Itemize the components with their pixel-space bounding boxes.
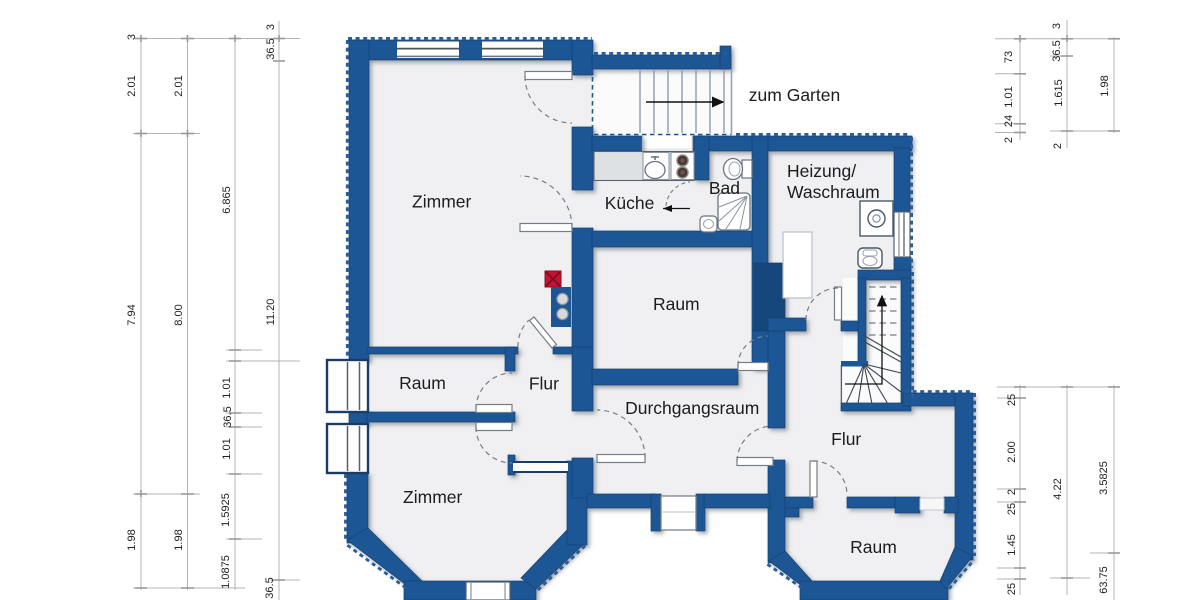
svg-text:36.5: 36.5 bbox=[222, 406, 234, 427]
svg-text:36.5: 36.5 bbox=[264, 577, 276, 598]
svg-text:1.45: 1.45 bbox=[1006, 534, 1018, 555]
svg-text:3.5825: 3.5825 bbox=[1098, 461, 1110, 495]
svg-text:1.98: 1.98 bbox=[126, 529, 138, 550]
svg-text:73: 73 bbox=[1003, 51, 1015, 63]
svg-text:Küche: Küche bbox=[605, 193, 655, 213]
svg-text:63.75: 63.75 bbox=[1098, 566, 1110, 594]
svg-text:1.01: 1.01 bbox=[221, 438, 233, 459]
svg-text:2.00: 2.00 bbox=[1006, 441, 1018, 462]
svg-text:2.01: 2.01 bbox=[173, 75, 185, 96]
svg-text:1.01: 1.01 bbox=[221, 377, 233, 398]
svg-text:Flur: Flur bbox=[529, 374, 559, 394]
svg-text:2: 2 bbox=[1006, 489, 1018, 495]
svg-text:zum Garten: zum Garten bbox=[749, 85, 840, 105]
svg-text:36.5: 36.5 bbox=[265, 38, 277, 59]
svg-text:2: 2 bbox=[1052, 143, 1064, 149]
svg-text:Heizung/: Heizung/ bbox=[787, 161, 856, 181]
svg-text:Raum: Raum bbox=[653, 294, 700, 314]
svg-text:2.01: 2.01 bbox=[126, 75, 138, 96]
svg-text:Waschraum: Waschraum bbox=[787, 182, 880, 202]
svg-text:Raum: Raum bbox=[399, 373, 446, 393]
svg-text:3: 3 bbox=[126, 34, 138, 40]
svg-text:Durchgangsraum: Durchgangsraum bbox=[625, 398, 759, 418]
svg-text:Zimmer: Zimmer bbox=[403, 487, 462, 507]
svg-text:8.00: 8.00 bbox=[173, 304, 185, 325]
svg-text:Bad: Bad bbox=[709, 178, 740, 198]
svg-text:36.5: 36.5 bbox=[1051, 40, 1063, 61]
svg-text:6.865: 6.865 bbox=[221, 186, 233, 214]
svg-text:11.20: 11.20 bbox=[265, 299, 277, 326]
svg-text:Raum: Raum bbox=[850, 537, 897, 557]
svg-text:1.01: 1.01 bbox=[1003, 86, 1015, 107]
svg-text:1.98: 1.98 bbox=[173, 529, 185, 550]
svg-text:1.0875: 1.0875 bbox=[220, 555, 232, 589]
svg-text:Zimmer: Zimmer bbox=[412, 192, 471, 212]
svg-text:3: 3 bbox=[1051, 23, 1063, 29]
svg-text:2: 2 bbox=[1003, 137, 1015, 143]
svg-text:4.22: 4.22 bbox=[1052, 478, 1064, 499]
svg-text:1.615: 1.615 bbox=[1053, 79, 1065, 107]
svg-text:Flur: Flur bbox=[831, 429, 861, 449]
svg-text:3: 3 bbox=[265, 24, 277, 30]
svg-text:24: 24 bbox=[1003, 115, 1015, 127]
svg-text:7.94: 7.94 bbox=[126, 304, 138, 325]
svg-text:25: 25 bbox=[1006, 583, 1018, 595]
svg-text:1.5925: 1.5925 bbox=[220, 493, 232, 527]
svg-text:25: 25 bbox=[1006, 394, 1018, 406]
svg-text:1.98: 1.98 bbox=[1099, 75, 1111, 96]
svg-text:25: 25 bbox=[1006, 503, 1018, 515]
